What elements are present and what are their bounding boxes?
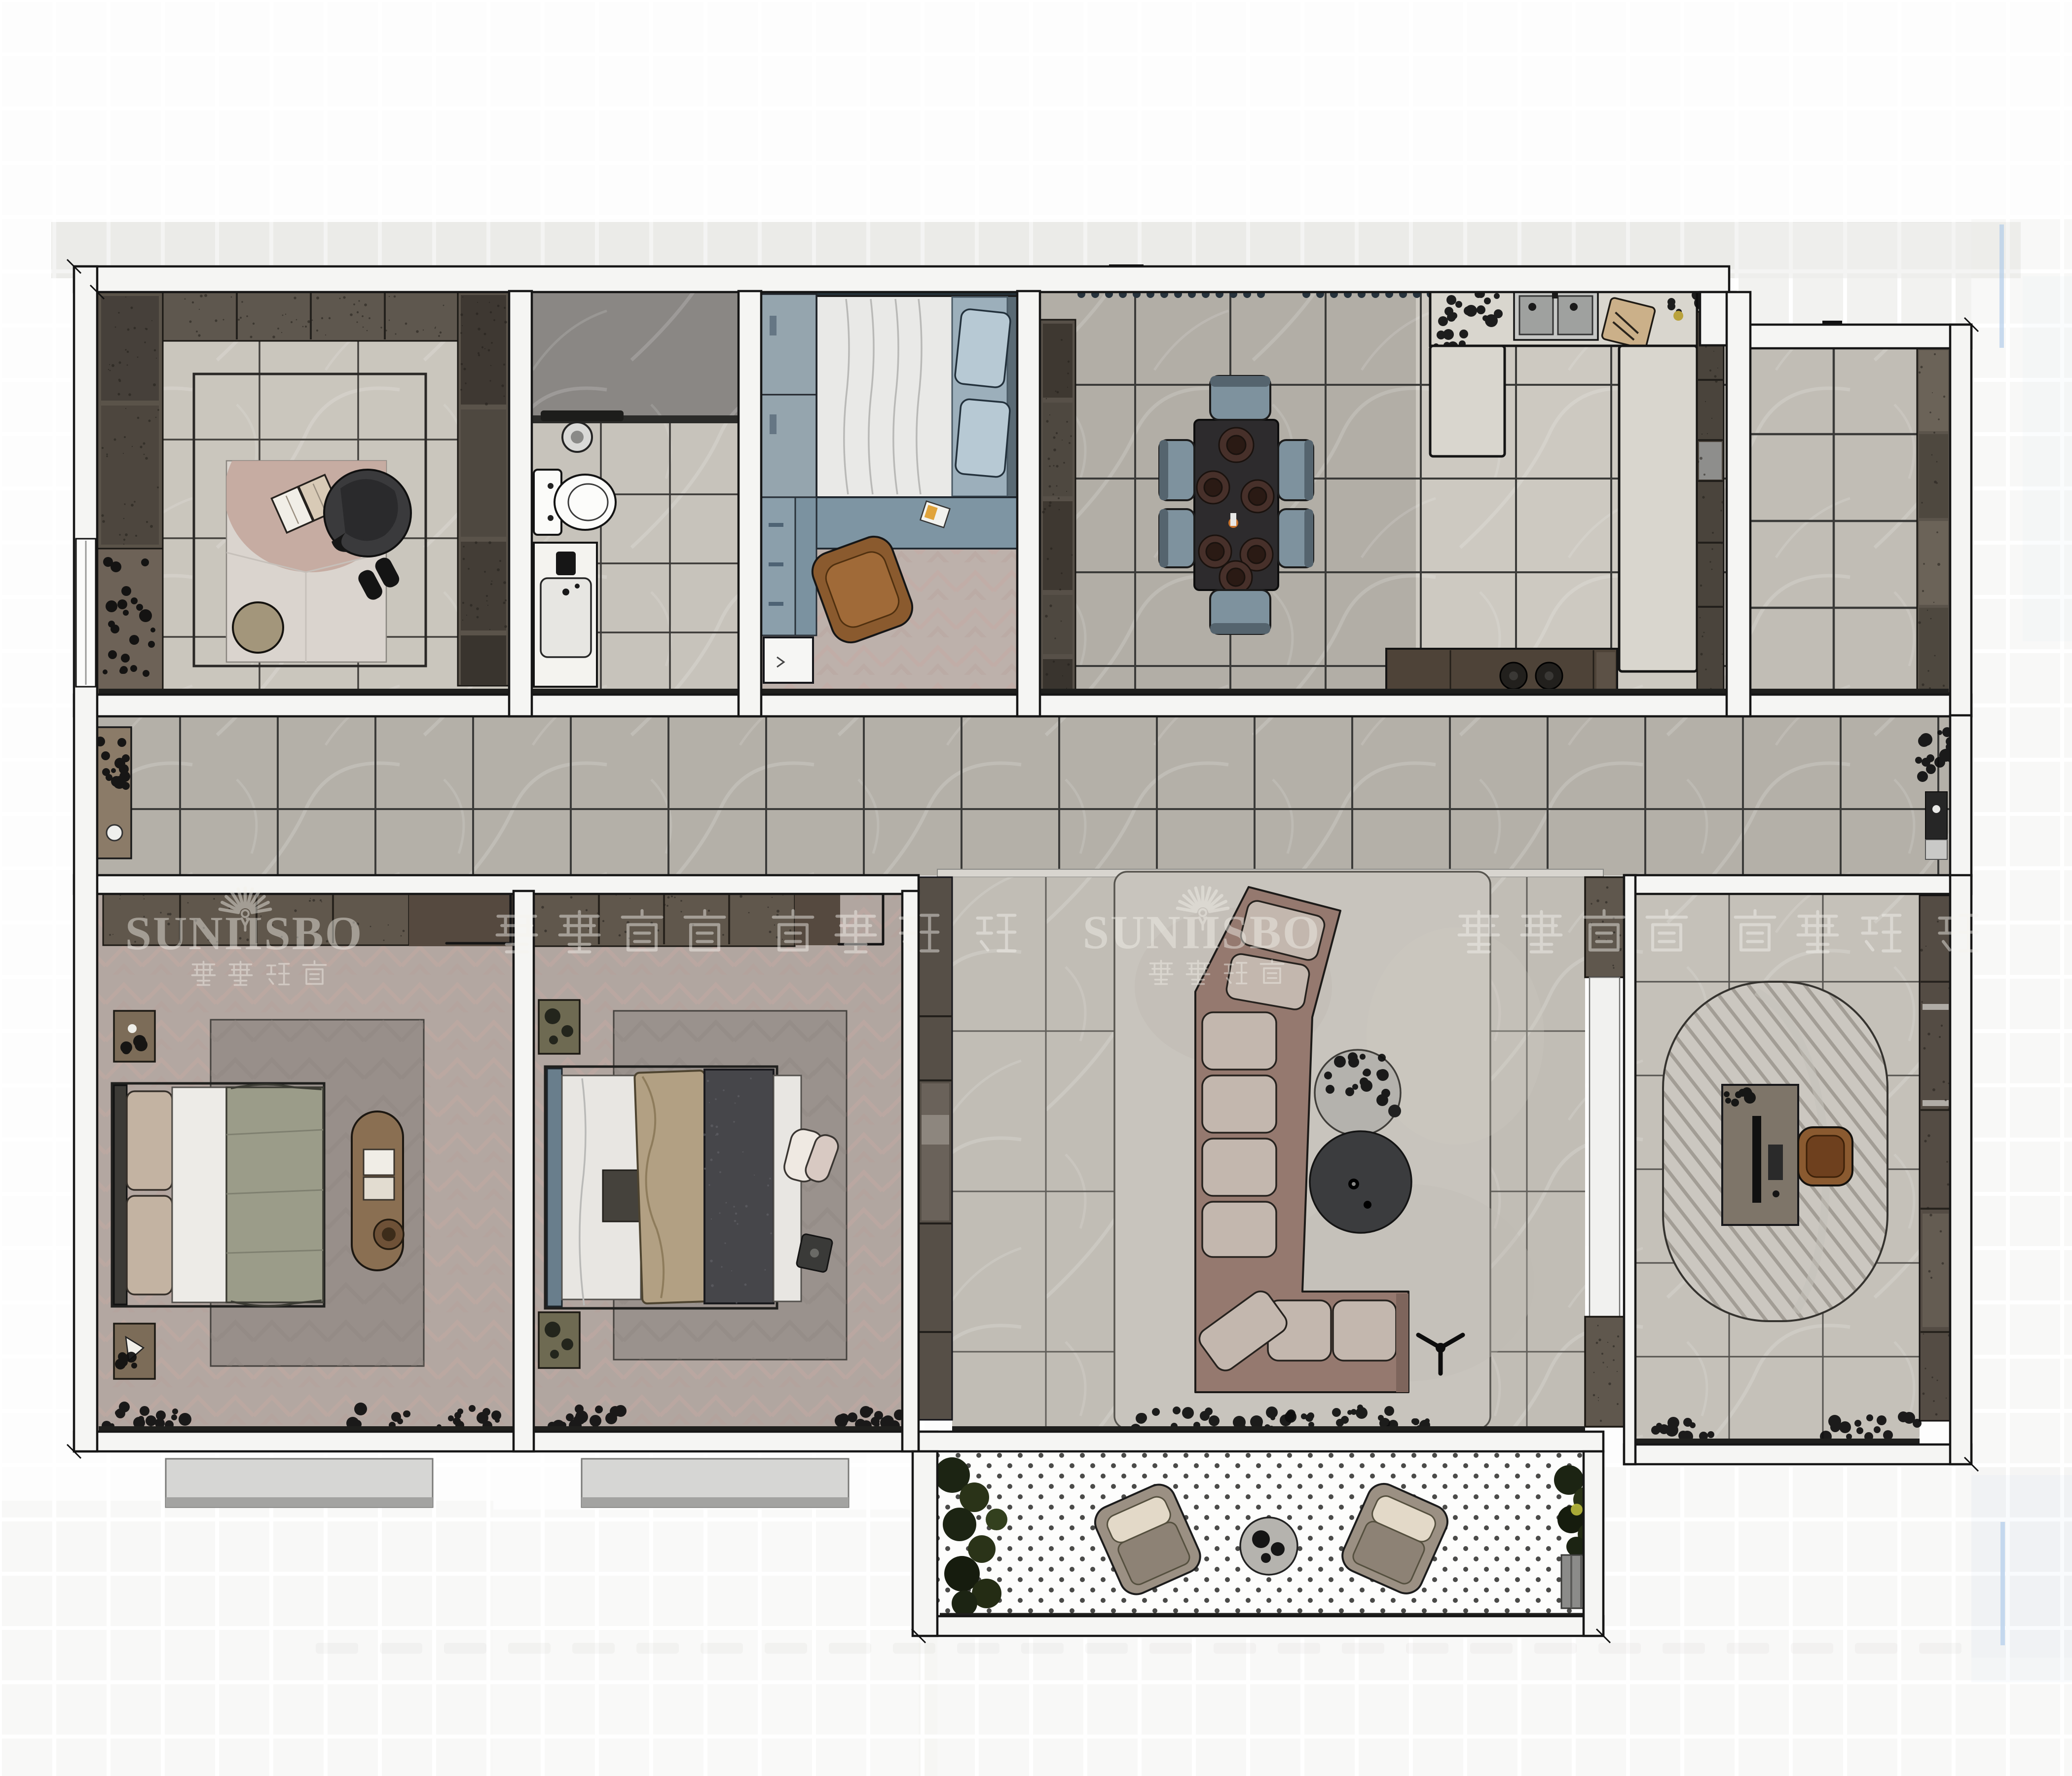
svg-text:SUNIISBO: SUNIISBO [1083,906,1321,959]
svg-text:SUNIISBO: SUNIISBO [125,907,364,960]
